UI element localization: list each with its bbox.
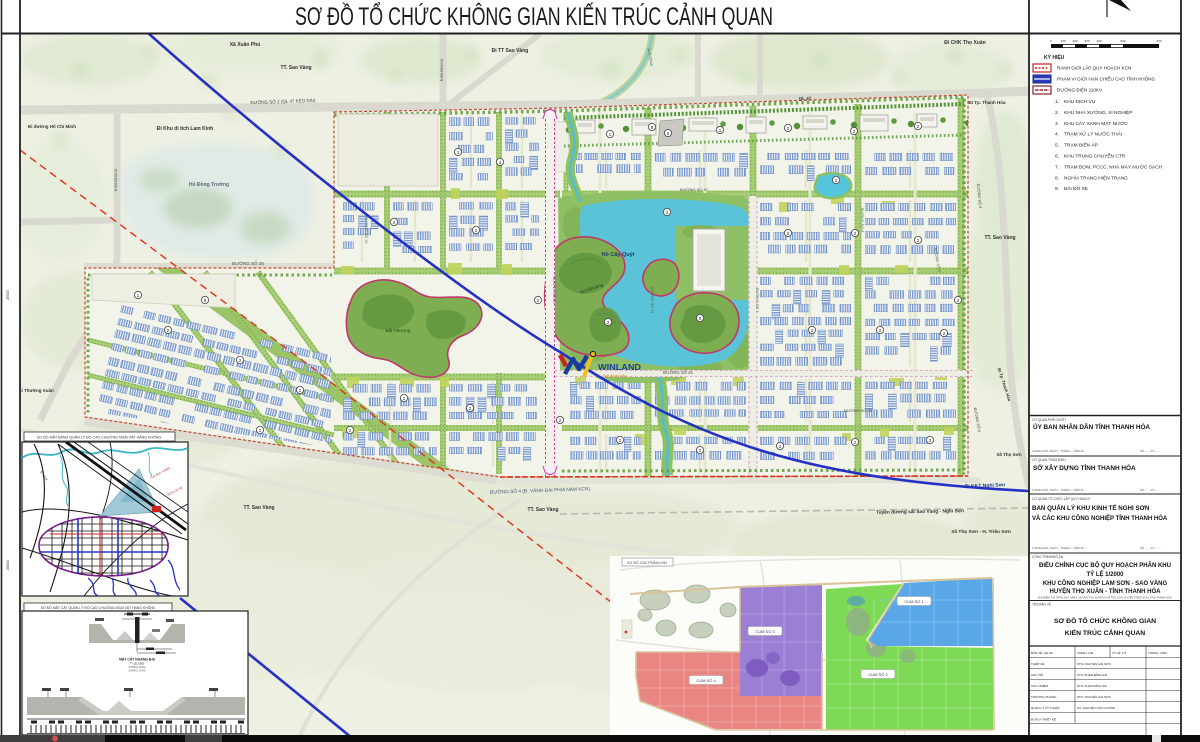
svg-text:N Đ6 ĐN2/10: N Đ6 ĐN2/10 [114, 169, 118, 192]
svg-text:Đi CHK Thọ Xuân: Đi CHK Thọ Xuân [944, 40, 985, 46]
svg-text:28000: 28000 [6, 560, 10, 570]
svg-text:TÊN BẢN VẼ: TÊN BẢN VẼ [1032, 602, 1051, 607]
svg-text:TỶ LỆ: 1/T: TỶ LỆ: 1/T [1112, 650, 1127, 655]
svg-text:Hồ Cây Quýt: Hồ Cây Quýt [601, 252, 634, 258]
svg-text:9.: 9. [1055, 186, 1059, 192]
svg-text:ĐƯỜNG SỐ 37: ĐƯỜNG SỐ 37 [680, 187, 709, 192]
svg-text:SƠ ĐỒ CÁC PHÂN KHU: SƠ ĐỒ CÁC PHÂN KHU [627, 560, 667, 565]
svg-text:KHU DỊCH VỤ: KHU DỊCH VỤ [1064, 99, 1096, 105]
svg-text:CƠ QUAN PHÊ DUYỆT: CƠ QUAN PHÊ DUYỆT [1032, 417, 1066, 422]
svg-text:4.: 4. [1055, 132, 1059, 138]
svg-text:6.: 6. [1055, 154, 1059, 160]
svg-text:1.: 1. [1055, 99, 1059, 105]
svg-text:BAN QUẢN LÝ KHU KINH TẾ NGHI S: BAN QUẢN LÝ KHU KINH TẾ NGHI SƠN [1032, 505, 1150, 512]
svg-text:THANH HÓA, NGÀY....THÁNG....NĂ: THANH HÓA, NGÀY....THÁNG....NĂM 20.... [1032, 487, 1087, 492]
svg-text:VÀ CÁC KHU CÔNG NGHIỆP TỈNH TH: VÀ CÁC KHU CÔNG NGHIỆP TỈNH THANH HÓA [1032, 514, 1168, 522]
svg-text:5.: 5. [1055, 143, 1059, 149]
svg-text:HUYỆN THỌ XUÂN - TỈNH THANH HÓ: HUYỆN THỌ XUÂN - TỈNH THANH HÓA [1050, 587, 1162, 595]
svg-text:300: 300 [1084, 39, 1089, 43]
svg-text:ỦY BAN NHÂN DÂN TỈNH THANH HÓA: ỦY BAN NHÂN DÂN TỈNH THANH HÓA [1033, 422, 1150, 431]
svg-text:CỤM SỐ 2: CỤM SỐ 2 [868, 672, 888, 677]
svg-text:600: 600 [1156, 39, 1161, 43]
svg-text:ĐƯỜNG ĐIỆN 110KV: ĐƯỜNG ĐIỆN 110KV [1057, 86, 1103, 93]
svg-text:WINLAND: WINLAND [598, 362, 641, 372]
svg-text:Xã Thọ Sơn - H. Triệu Sơn: Xã Thọ Sơn - H. Triệu Sơn [951, 529, 1011, 535]
svg-text:TT. Sao Vàng: TT. Sao Vàng [984, 235, 1015, 241]
svg-text:TRẠM XỬ LÝ NƯỚC THẢI: TRẠM XỬ LÝ NƯỚC THẢI [1064, 131, 1122, 138]
svg-text:THIẾT KẾ: THIẾT KẾ [1031, 661, 1044, 666]
svg-text:SỐ:........KÝ:........: SỐ:........KÝ:........ [1140, 448, 1162, 453]
svg-text:KHU TRUNG CHUYỂN CTR: KHU TRUNG CHUYỂN CTR [1064, 153, 1126, 160]
svg-text:CHỦ NHIỆM: CHỦ NHIỆM [1031, 683, 1049, 688]
svg-text:SƠ ĐỒ MẶT CẮT QUẢN LÝ ĐỘ CAO C: SƠ ĐỒ MẶT CẮT QUẢN LÝ ĐỘ CAO CHƯỚNG NGẠI… [41, 605, 156, 610]
svg-text:26000: 26000 [6, 290, 10, 300]
svg-text:Đi Thường Xuân: Đi Thường Xuân [18, 388, 54, 393]
svg-text:2.: 2. [1055, 110, 1059, 116]
svg-text:KHU CÔNG NGHIỆP LAM SƠN - SAO: KHU CÔNG NGHIỆP LAM SƠN - SAO VÀNG [1043, 579, 1168, 587]
svg-text:CỤM SỐ 4: CỤM SỐ 4 [696, 678, 716, 683]
svg-text:ĐƯỜNG SỐ 26: ĐƯỜNG SỐ 26 [232, 260, 264, 266]
svg-text:200: 200 [1072, 39, 1077, 43]
svg-text:TT. Sao Vàng: TT. Sao Vàng [280, 65, 311, 71]
svg-text:ĐƯỜNG SỐ 7: ĐƯỜNG SỐ 7 [755, 288, 760, 313]
svg-text:TRẠM BƠM, PCCC, NHÀ MÁY NƯỚC S: TRẠM BƠM, PCCC, NHÀ MÁY NƯỚC SẠCH [1064, 163, 1163, 170]
svg-text:CÔNG TRÌNH/ĐỒ ÁN: CÔNG TRÌNH/ĐỒ ÁN [1032, 554, 1064, 559]
svg-text:3.: 3. [1055, 121, 1059, 127]
svg-text:Bãi Nhượng: Bãi Nhượng [386, 328, 411, 333]
svg-text:TỶ LỆ 1/2000: TỶ LỆ 1/2000 [1086, 570, 1124, 578]
svg-text:MẶT CẮT NGANG B-B: MẶT CẮT NGANG B-B [119, 657, 155, 662]
svg-text:QL 47: QL 47 [799, 96, 812, 101]
svg-text:TT. Sao Vàng: TT. Sao Vàng [527, 507, 558, 513]
svg-text:CỤM SỐ 3: CỤM SỐ 3 [755, 629, 775, 634]
svg-text:THANH HÓA, NGÀY....THÁNG....NĂ: THANH HÓA, NGÀY....THÁNG....NĂM 20.... [1032, 545, 1087, 550]
svg-text:Xã Thọ Sơn: Xã Thọ Sơn [996, 452, 1021, 457]
svg-text:ĐƠN VỊ THIẾT KẾ: ĐƠN VỊ THIẾT KẾ [1031, 717, 1056, 722]
svg-text:KÝ HIỆU: KÝ HIỆU [1044, 53, 1065, 61]
svg-text:KTS. PHẠM ĐÌNH HẢI: KTS. PHẠM ĐÌNH HẢI [1077, 672, 1107, 677]
svg-text:500: 500 [1120, 39, 1125, 43]
svg-text:CƠ QUAN THẨM ĐỊNH: CƠ QUAN THẨM ĐỊNH [1032, 457, 1066, 462]
svg-text:7.: 7. [1055, 164, 1059, 170]
svg-text:Hồ Đồng Trường: Hồ Đồng Trường [189, 182, 229, 188]
svg-text:BÃI ĐỖ XE: BÃI ĐỖ XE [1064, 185, 1088, 192]
svg-text:ĐƯỜNG SỐ 24: ĐƯỜNG SỐ 24 [663, 370, 693, 375]
svg-text:KTS. PHAN ĐÌNH HẢI: KTS. PHAN ĐÌNH HẢI [1077, 683, 1107, 688]
svg-text:SỐ:........KÝ:........: SỐ:........KÝ:........ [1140, 545, 1162, 550]
svg-text:N Đ6 ĐN2/10: N Đ6 ĐN2/10 [440, 59, 444, 82]
svg-text:QUẢN LÝ KỸ THUẬT: QUẢN LÝ KỸ THUẬT [1031, 705, 1060, 710]
svg-text:SƠ ĐỒ TỔ CHỨC KHÔNG GIAN KIẾN: SƠ ĐỒ TỔ CHỨC KHÔNG GIAN KIẾN TRÚC CẢNH … [295, 1, 773, 31]
svg-text:ĐIỀU CHỈNH CỤC BỘ QUY HOẠCH PH: ĐIỀU CHỈNH CỤC BỘ QUY HOẠCH PHÂN KHU [1039, 561, 1171, 569]
svg-text:ĐƯỜNG SỐ 12: ĐƯỜNG SỐ 12 [650, 287, 655, 314]
svg-text:ĐƯỜNG SỐ 2C: ĐƯỜNG SỐ 2C [552, 276, 557, 304]
svg-text:THANH HÓA, NGÀY....THÁNG....NĂ: THANH HÓA, NGÀY....THÁNG....NĂM 20.... [1032, 448, 1087, 453]
svg-text:Xã Xuân Phú: Xã Xuân Phú [230, 42, 261, 48]
svg-text:(KHÔNG GIAN): (KHÔNG GIAN) [129, 670, 146, 673]
svg-text:Đi TT Sao Vàng: Đi TT Sao Vàng [492, 48, 529, 54]
svg-text:KTS. NGUYỄN HẢI SƠN: KTS. NGUYỄN HẢI SƠN [1077, 661, 1111, 666]
svg-text:CHỈNH: L00: CHỈNH: L00 [1077, 650, 1094, 655]
svg-text:BẢN VẼ: QH-09: BẢN VẼ: QH-09 [1031, 650, 1053, 655]
svg-text:ĐƯỜNG SỐ 8: ĐƯỜNG SỐ 8 [860, 208, 865, 233]
svg-text:ĐƯỜNG SỐ 35: ĐƯỜNG SỐ 35 [844, 408, 873, 413]
svg-text:TT. Sao Vàng: TT. Sao Vàng [243, 505, 274, 511]
svg-text:SỐ:........KÝ:........: SỐ:........KÝ:........ [1140, 487, 1162, 492]
svg-text:Bất động sản: Bất động sản [603, 373, 627, 378]
svg-text:Đi Khu di tích Lam Kinh: Đi Khu di tích Lam Kinh [157, 126, 213, 132]
svg-text:CƠ QUAN TỔ CHỨC LẬP QUY HOẠCH: CƠ QUAN TỔ CHỨC LẬP QUY HOẠCH [1032, 496, 1091, 501]
svg-text:ĐƯỜNG SỐ 10: ĐƯỜNG SỐ 10 [364, 217, 369, 244]
svg-text:TRẠM BIẾN ÁP: TRẠM BIẾN ÁP [1064, 142, 1098, 149]
svg-text:400: 400 [1096, 39, 1101, 43]
svg-text:PHẠM VI GIỚI HẠN CHIỀU CAO TĨN: PHẠM VI GIỚI HẠN CHIỀU CAO TĨNH KHÔNG [1057, 76, 1155, 82]
svg-text:KTS. NGUYỄN HẢI SƠN: KTS. NGUYỄN HẢI SƠN [1077, 694, 1111, 699]
svg-text:8.: 8. [1055, 175, 1059, 181]
svg-text:TRƯỞNG PHÒNG: TRƯỞNG PHÒNG [1031, 694, 1057, 699]
svg-text:KS. NGUYỄN VĂN CƯƠNG: KS. NGUYỄN VĂN CƯƠNG [1077, 705, 1116, 710]
svg-text:RANH GIỚI LẬP QUY HOẠCH KCN: RANH GIỚI LẬP QUY HOẠCH KCN [1057, 65, 1131, 71]
svg-text:CHỦ TRÌ: CHỦ TRÌ [1031, 672, 1043, 677]
svg-text:CỤM SỐ 1: CỤM SỐ 1 [904, 599, 924, 604]
svg-text:Đi đường Hồ Chí Minh: Đi đường Hồ Chí Minh [28, 124, 76, 129]
svg-text:SỞ XÂY DỰNG TỈNH THANH HÓA: SỞ XÂY DỰNG TỈNH THANH HÓA [1033, 463, 1136, 472]
svg-text:SƠ ĐỒ MẶT BẰNG QUẢN LÝ ĐỘ CAO: SƠ ĐỒ MẶT BẰNG QUẢN LÝ ĐỘ CAO CHƯỚNG NGẠ… [37, 435, 162, 440]
svg-text:100: 100 [1060, 39, 1065, 43]
svg-text:Đi Tp. Thanh Hóa: Đi Tp. Thanh Hóa [969, 100, 1006, 105]
svg-text:THÁNG: 2020: THÁNG: 2020 [1148, 651, 1167, 655]
svg-text:KHU CÂY XANH MẶT NƯỚC: KHU CÂY XANH MẶT NƯỚC [1064, 120, 1128, 127]
